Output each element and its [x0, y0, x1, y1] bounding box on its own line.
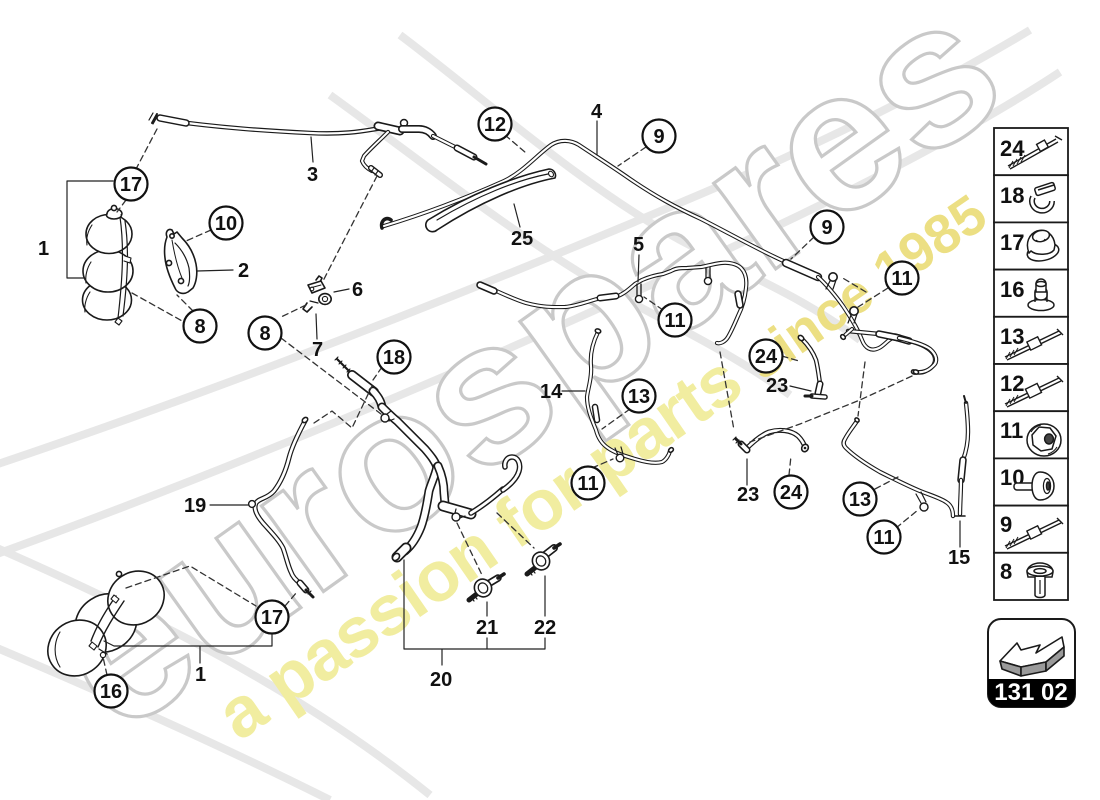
svg-text:9: 9: [821, 217, 832, 239]
svg-text:21: 21: [476, 617, 498, 639]
svg-text:23: 23: [766, 375, 788, 397]
svg-text:8: 8: [194, 316, 205, 338]
svg-text:24: 24: [755, 346, 778, 368]
svg-text:7: 7: [312, 339, 323, 361]
svg-text:3: 3: [307, 164, 318, 186]
svg-text:24: 24: [1000, 136, 1025, 161]
svg-text:6: 6: [352, 279, 363, 301]
svg-text:25: 25: [511, 228, 533, 250]
svg-text:1: 1: [195, 664, 206, 686]
svg-text:18: 18: [383, 347, 405, 369]
svg-text:22: 22: [534, 617, 556, 639]
svg-text:9: 9: [653, 126, 664, 148]
svg-text:23: 23: [737, 484, 759, 506]
svg-text:12: 12: [1000, 371, 1024, 396]
svg-text:15: 15: [948, 547, 970, 569]
svg-text:24: 24: [780, 482, 803, 504]
svg-text:19: 19: [184, 495, 206, 517]
svg-text:13: 13: [1000, 324, 1024, 349]
svg-text:1: 1: [38, 238, 49, 260]
svg-text:14: 14: [540, 381, 563, 403]
svg-text:11: 11: [1000, 418, 1023, 443]
svg-text:2: 2: [238, 260, 249, 282]
svg-text:16: 16: [1000, 277, 1024, 302]
svg-text:17: 17: [261, 607, 283, 629]
svg-text:18: 18: [1000, 183, 1024, 208]
svg-text:17: 17: [120, 174, 142, 196]
svg-text:13: 13: [849, 489, 871, 511]
svg-text:13: 13: [628, 386, 650, 408]
svg-text:8: 8: [259, 323, 270, 345]
svg-text:11: 11: [577, 473, 598, 495]
svg-text:17: 17: [1000, 230, 1024, 255]
svg-text:11: 11: [891, 268, 912, 290]
svg-text:12: 12: [484, 114, 506, 136]
svg-text:11: 11: [873, 527, 894, 549]
svg-text:10: 10: [215, 213, 237, 235]
svg-text:16: 16: [100, 681, 122, 703]
svg-text:131 02: 131 02: [994, 679, 1067, 706]
svg-text:9: 9: [1000, 512, 1012, 537]
svg-text:5: 5: [633, 234, 644, 256]
svg-text:11: 11: [664, 310, 685, 332]
svg-text:20: 20: [430, 669, 452, 691]
svg-text:4: 4: [591, 101, 603, 123]
svg-text:8: 8: [1000, 559, 1012, 584]
